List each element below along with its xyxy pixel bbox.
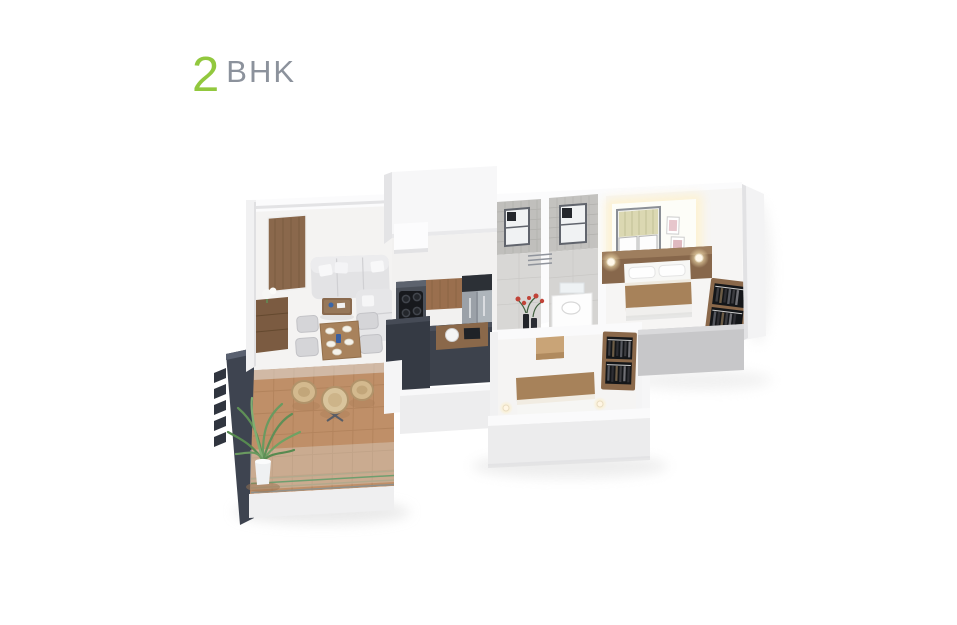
- living-room: [246, 194, 395, 372]
- exhaust-fan: [507, 212, 516, 221]
- bedroom2-wardrobe: [601, 331, 637, 390]
- floorplan-render: [0, 0, 957, 625]
- bench: [536, 336, 564, 360]
- master-bed: [624, 260, 692, 321]
- balcony: [214, 348, 394, 525]
- balcony-chair-left: [292, 381, 316, 403]
- second-bedroom: [488, 322, 650, 468]
- coffee-table: [320, 298, 354, 321]
- wing-wall-left: [384, 360, 402, 414]
- bottle-decor: [336, 334, 341, 343]
- louver-fins: [214, 368, 226, 447]
- bathrooms: [497, 193, 606, 344]
- platform-sink-unit: [436, 322, 488, 350]
- bathroom1-window: [505, 208, 529, 246]
- balcony-chair-right: [351, 380, 373, 400]
- kitchen-wood-floor: [426, 278, 462, 310]
- bathroom-divider-wall: [541, 198, 549, 324]
- floor-lamp-left: [499, 401, 513, 415]
- bathroom2-window: [560, 204, 586, 244]
- exhaust-fan: [562, 208, 572, 218]
- bedroom2-left-wall: [490, 332, 498, 428]
- table-lamp-left: [601, 252, 621, 272]
- floor-lamp-right: [593, 397, 607, 411]
- master-bedroom: [601, 184, 766, 340]
- floorplan-svg: [0, 0, 957, 625]
- table-lamp-right: [689, 248, 709, 268]
- bedroom2-front-wall: [488, 408, 650, 468]
- entrance-door: [268, 215, 306, 292]
- master-front-wall: [638, 324, 744, 376]
